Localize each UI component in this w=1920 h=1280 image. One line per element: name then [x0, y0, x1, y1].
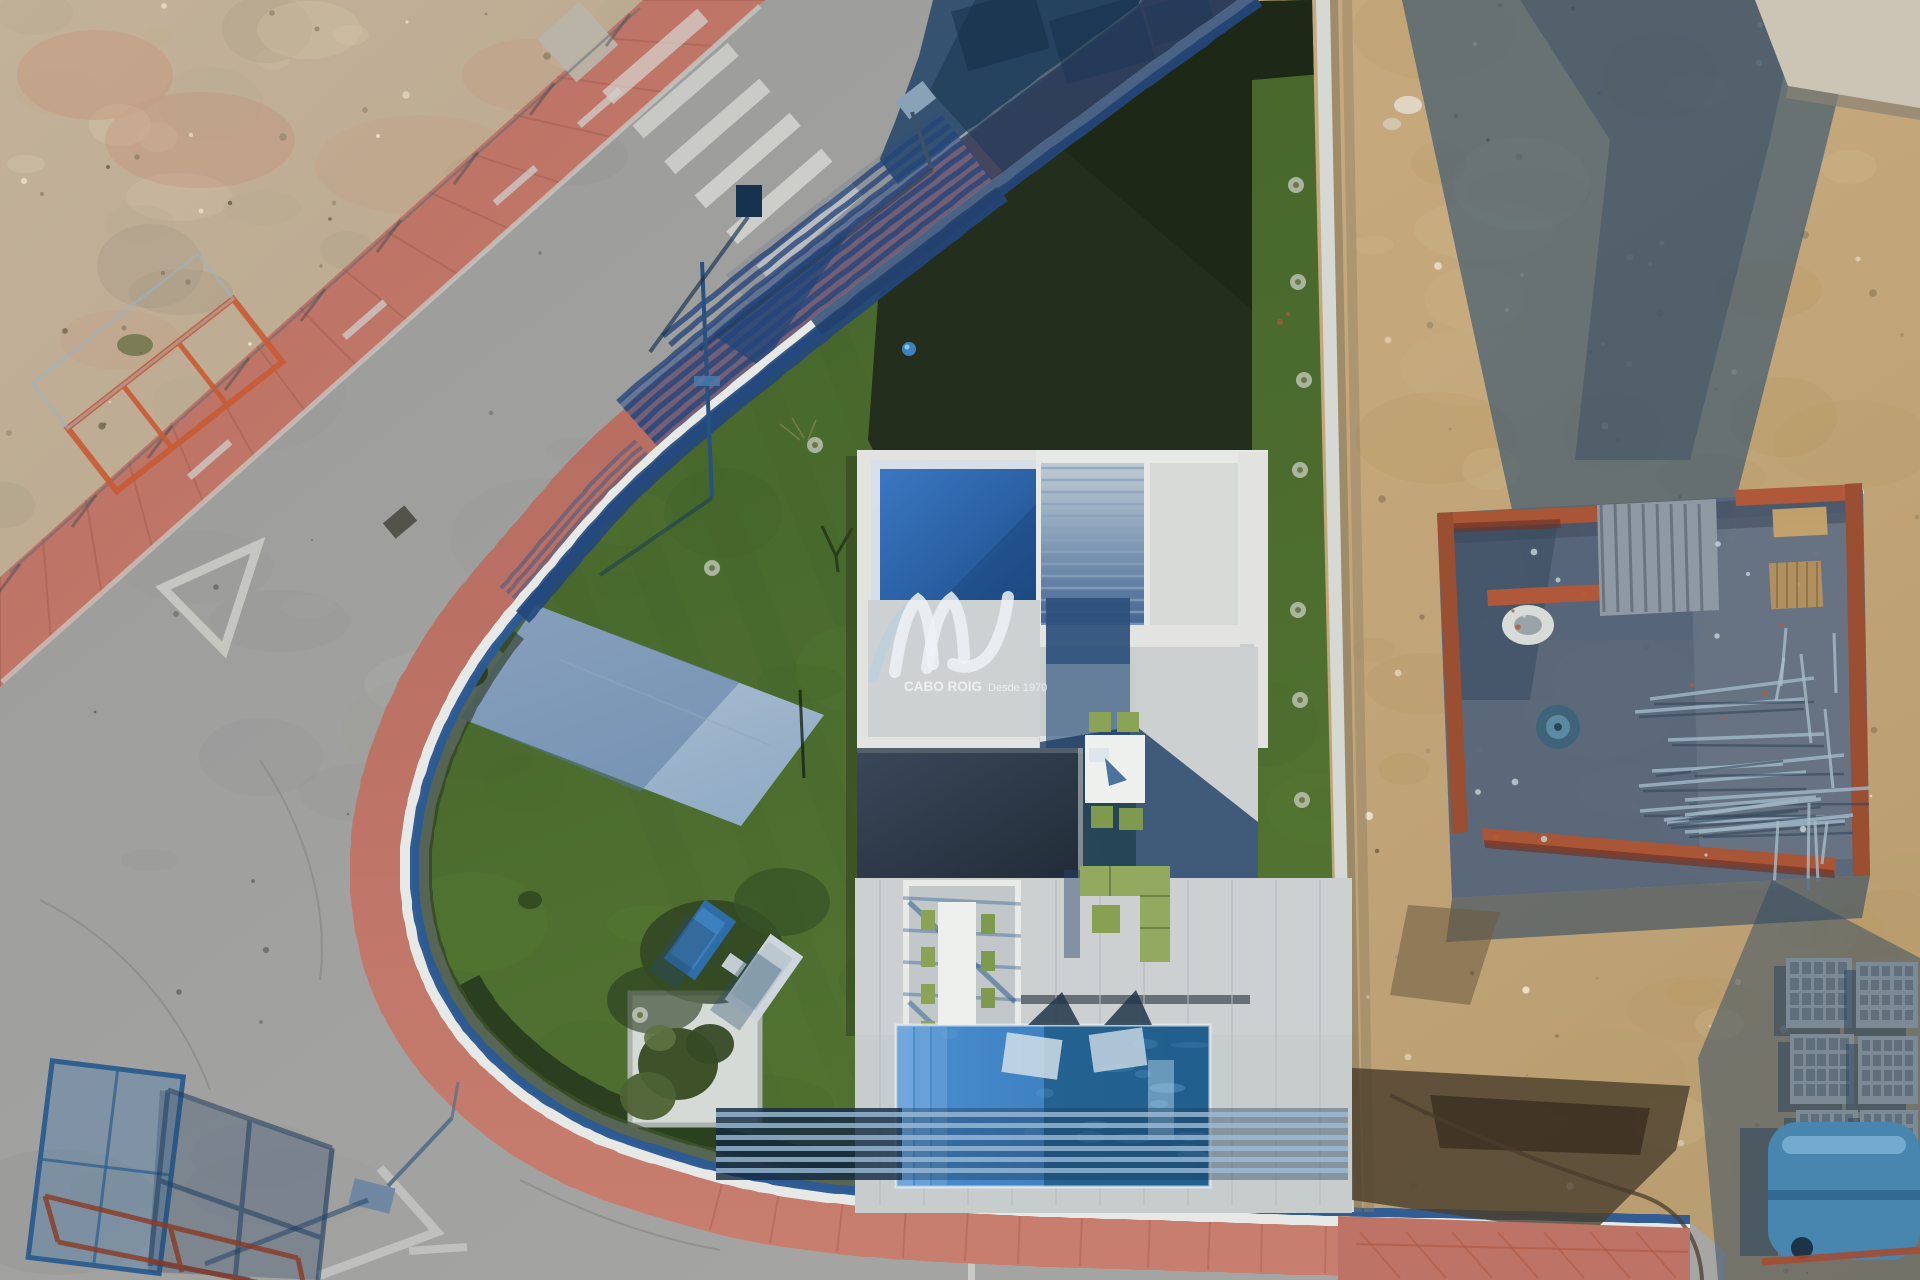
svg-text:CABO ROIG: CABO ROIG	[904, 679, 982, 694]
svg-text:Desde 1970: Desde 1970	[988, 682, 1047, 694]
